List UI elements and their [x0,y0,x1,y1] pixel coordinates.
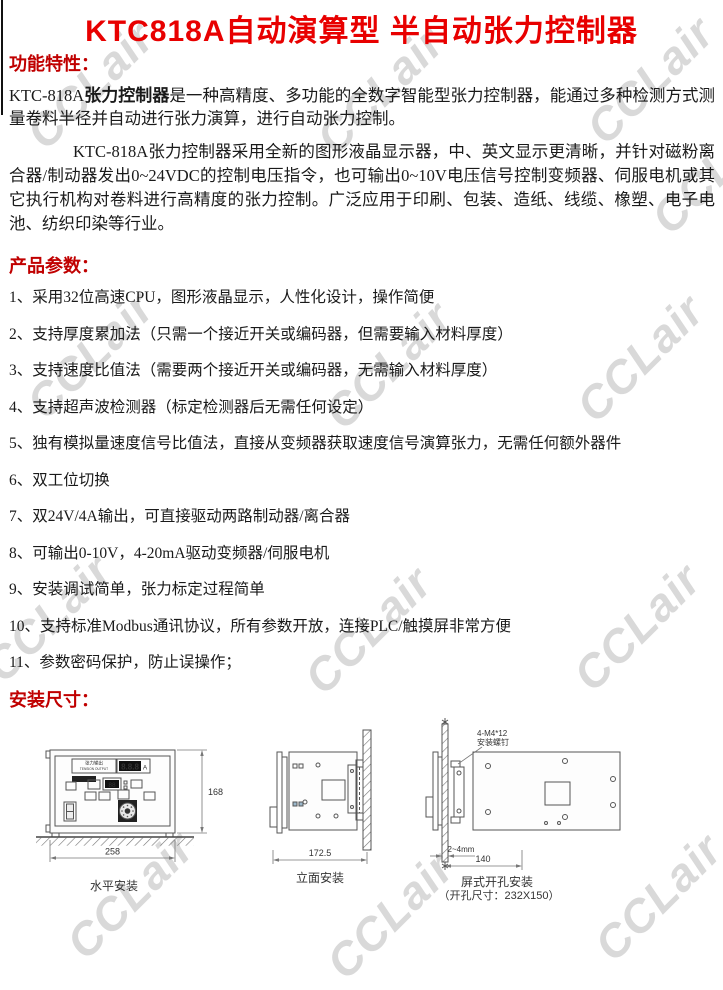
model-number: KTC-818A [9,86,84,105]
param-item: 8、可输出0-10V，4-20mA驱动变频器/伺服电机 [9,536,719,573]
side-mount-diagram: 172.5 立面安装 [262,728,382,890]
width-dimension: 140 [475,854,490,864]
seven-segment-display: 8.8.8 [121,763,139,772]
diagram-caption: 水平安装 [90,878,138,893]
panel-mount-diagram: 4-M4*12 安装螺钉 2~4mm 140 屏式开孔安装 （开孔尺寸：232X… [425,718,640,903]
controller-side-outline [426,752,620,830]
param-item: 5、独有模拟量速度信号比值法，直接从变频器获取速度信号演算张力，无需任何额外器件 [9,426,719,463]
document-page: CCLair CCLair CCLair CCLair CCLair CCLai… [0,0,723,901]
param-item: 1、采用32位高速CPU，图形液晶显示，人性化设计，操作简便 [9,280,719,317]
wall-hatch [363,730,371,850]
diagram-caption: 屏式开孔安装 [461,874,533,889]
param-item: 7、双24V/4A输出，可直接驱动两路制动器/离合器 [9,499,719,536]
display-label-en: TENSION OUTPUT [80,767,108,771]
cutout-size-note: （开孔尺寸：232X150） [438,888,559,902]
section-heading-params: 产品参数： [9,252,99,278]
width-dimension: 258 [105,847,120,857]
height-dimension: 168 [208,787,223,797]
param-item: 6、双工位切换 [9,463,719,500]
gap-dimension: 2~4mm [448,845,475,854]
depth-dimension: 172.5 [309,848,332,858]
ground-hatch [36,837,194,846]
controller-side-outline [270,752,357,833]
display-label-cn: 张力输出 [85,760,103,767]
horizontal-mount-diagram: 张力输出 TENSION OUTPUT 8.8.8 A 88 168 258 水… [28,740,228,898]
param-item: 11、参数密码保护，防止误操作； [9,645,719,682]
param-item: 4、支持超声波检测器（标定检测器后无需任何设定） [9,390,719,427]
sub-display: 88 [108,782,116,789]
page-title: KTC818A自动演算型 半自动张力控制器 [0,6,723,50]
clamp-bracket [451,761,464,823]
param-item: 2、支持厚度累加法（只需一个接近开关或编码器，但需要输入材料厚度） [9,317,719,354]
controller-front-outline [46,750,175,837]
param-item: 10、支持标准Modbus通讯协议，所有参数开放，连接PLC/触摸屏非常方便 [9,609,719,646]
tension-knob [118,800,137,822]
product-params-list: 1、采用32位高速CPU，图形液晶显示，人性化设计，操作简便 2、支持厚度累加法… [9,280,719,682]
screw-spec-label: 4-M4*12 [477,729,508,738]
display-unit: A [143,765,148,772]
intro-paragraph-2: KTC-818A张力控制器采用全新的图形液晶显示器，中、英文显示更清晰，并针对磁… [9,140,715,236]
model-product-name: 张力控制器 [84,86,169,105]
param-item: 9、安装调试简单，张力标定过程简单 [9,572,719,609]
param-item: 3、支持速度比值法（需要两个接近开关或编码器，无需输入材料厚度） [9,353,719,390]
diagram-caption: 立面安装 [296,870,344,885]
section-heading-install: 安装尺寸： [9,686,99,712]
section-heading-features: 功能特性： [9,50,99,76]
screw-name-label: 安装螺钉 [477,737,509,747]
intro-paragraph-1: KTC-818A张力控制器是一种高精度、多功能的全数字智能型张力控制器，能通过多… [9,84,715,130]
